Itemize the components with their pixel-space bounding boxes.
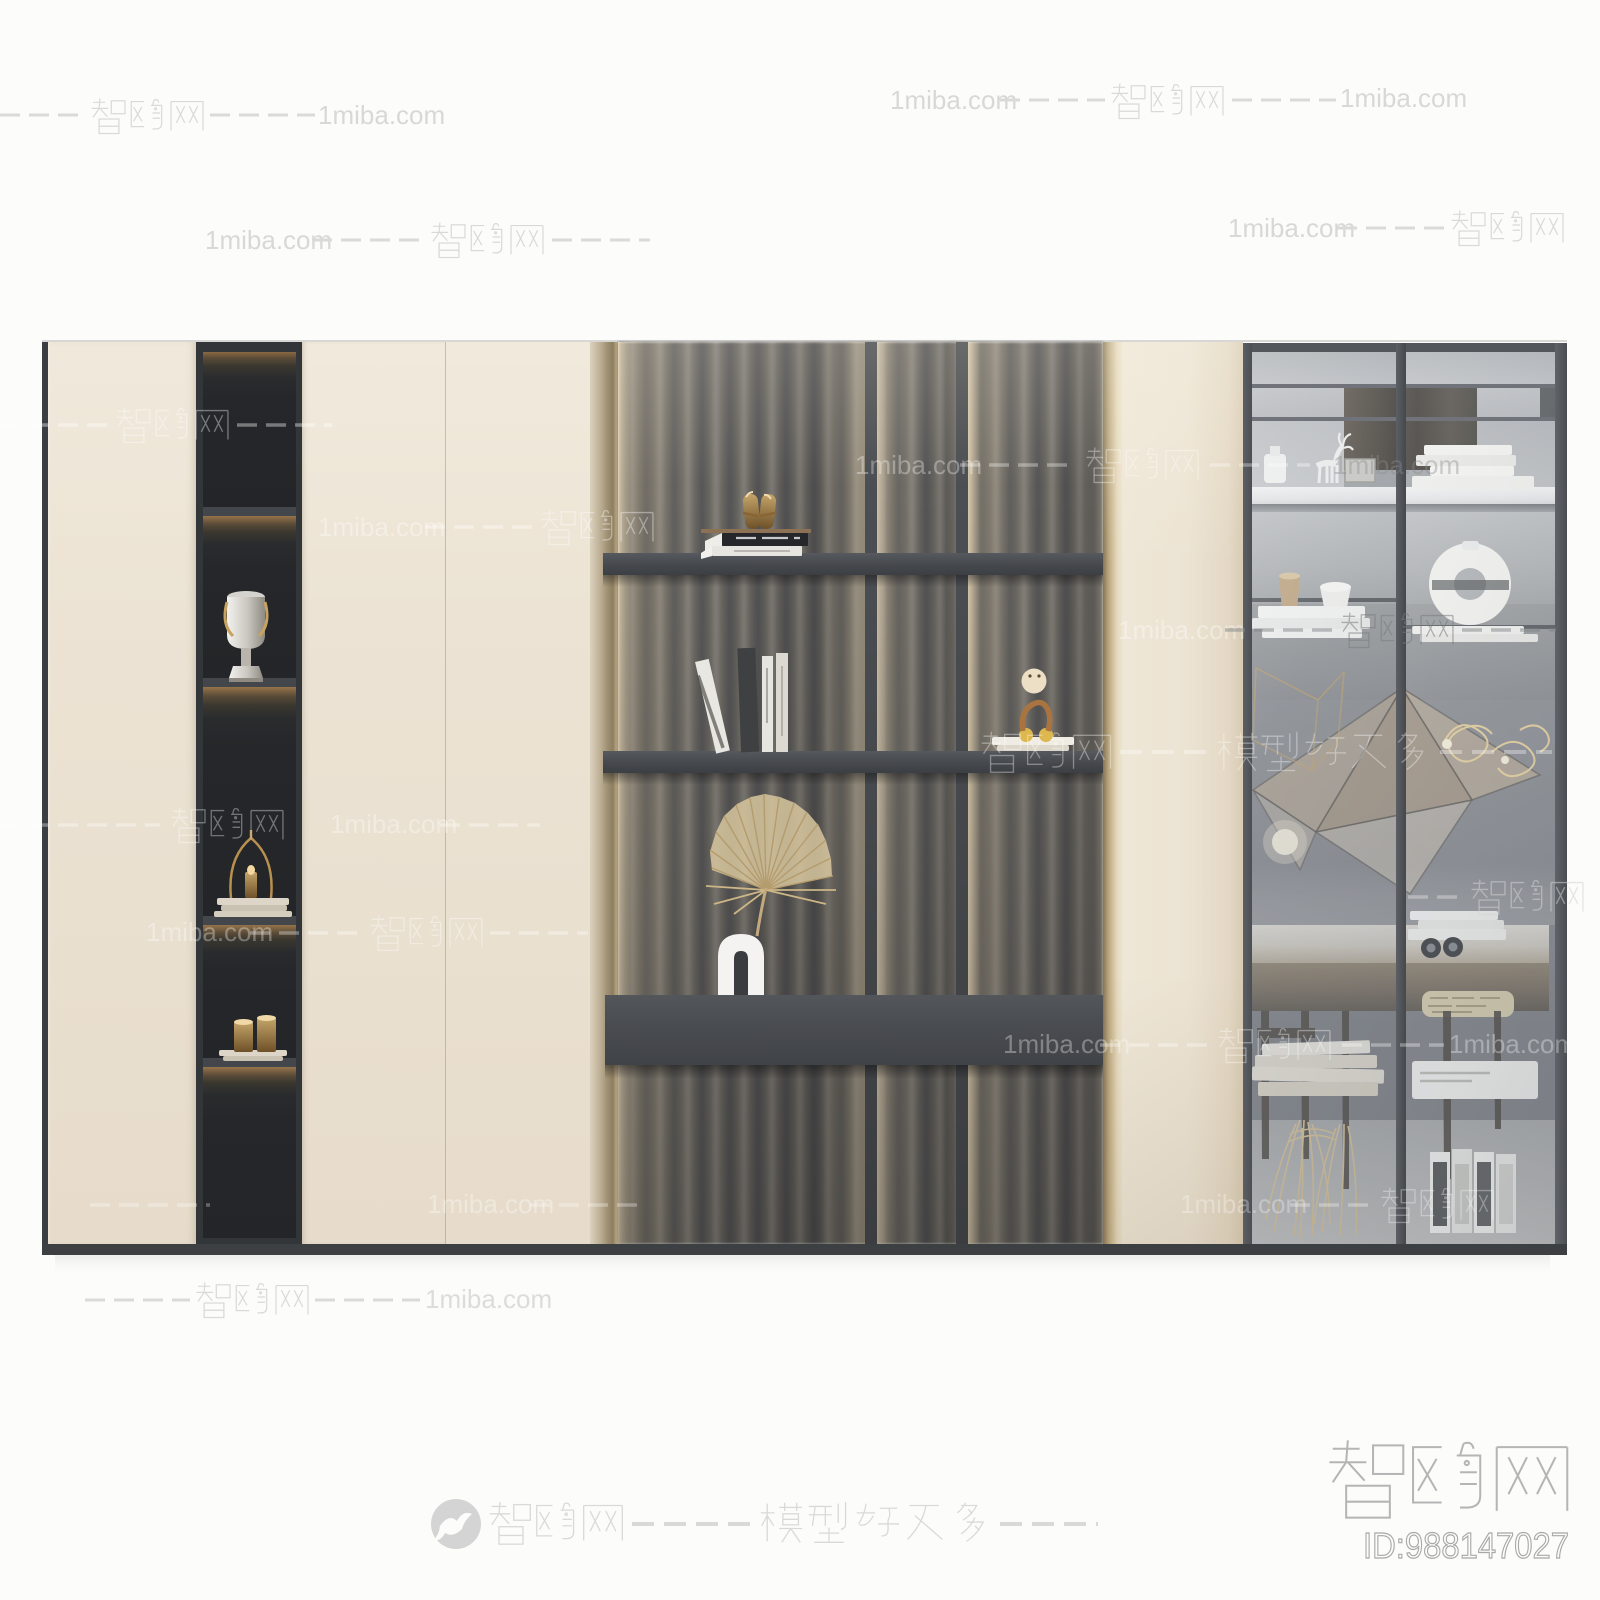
svg-text:1miba.com: 1miba.com bbox=[318, 100, 445, 130]
svg-text:1miba.com: 1miba.com bbox=[425, 1284, 552, 1314]
svg-text:1miba.com: 1miba.com bbox=[1228, 213, 1355, 243]
svg-text:1miba.com: 1miba.com bbox=[890, 85, 1017, 115]
svg-text:1miba.com: 1miba.com bbox=[1180, 1189, 1307, 1219]
svg-text:1miba.com: 1miba.com bbox=[427, 1189, 554, 1219]
svg-text:1miba.com: 1miba.com bbox=[330, 809, 457, 839]
svg-text:1miba.com: 1miba.com bbox=[1340, 83, 1467, 113]
svg-text:1miba.com: 1miba.com bbox=[1333, 450, 1460, 480]
svg-text:1miba.com: 1miba.com bbox=[1449, 1029, 1576, 1059]
svg-text:ID:988147027: ID:988147027 bbox=[1363, 1525, 1569, 1566]
